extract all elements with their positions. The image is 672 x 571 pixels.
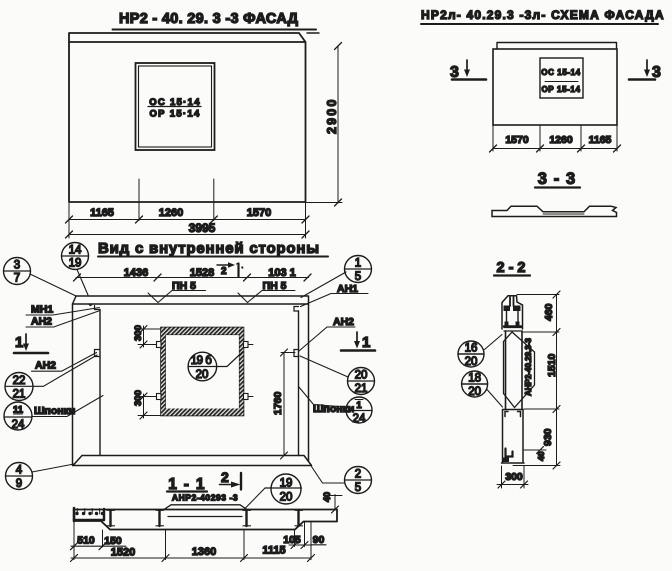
svg-text:22: 22 — [13, 375, 26, 387]
svg-text:930: 930 — [542, 428, 554, 446]
svg-text:40: 40 — [322, 492, 332, 502]
svg-text:НР2 - 40. 29. 3 -3 ФАСАД: НР2 - 40. 29. 3 -3 ФАСАД — [119, 11, 299, 27]
svg-text:Вид с внутренней стороны: Вид с внутренней стороны — [98, 240, 320, 257]
svg-text:24: 24 — [353, 413, 366, 425]
svg-text:1570: 1570 — [247, 207, 271, 219]
svg-text:3 - 3: 3 - 3 — [538, 170, 577, 188]
svg-text:3: 3 — [14, 260, 20, 272]
svg-text:40: 40 — [536, 451, 546, 461]
svg-text:АН2: АН2 — [35, 360, 56, 372]
svg-text:АНР2-40293 -3: АНР2-40293 -3 — [172, 493, 238, 503]
svg-text:14: 14 — [69, 245, 82, 257]
svg-text:1510: 1510 — [546, 353, 558, 377]
svg-text:1: 1 — [356, 400, 362, 411]
svg-text:2: 2 — [221, 266, 227, 277]
svg-text:ОР 15·14: ОР 15·14 — [149, 109, 200, 120]
svg-text:1: 1 — [355, 258, 361, 270]
svg-text:5: 5 — [355, 271, 361, 283]
svg-text:1: 1 — [15, 334, 23, 351]
svg-text:2 - 2: 2 - 2 — [496, 260, 525, 276]
svg-text:300: 300 — [133, 325, 144, 341]
svg-text:ОР 15-14: ОР 15-14 — [541, 85, 580, 94]
svg-text:2: 2 — [355, 469, 361, 481]
svg-text:2: 2 — [221, 469, 229, 485]
svg-text:4: 4 — [16, 465, 23, 477]
svg-text:АНР2-40.29.3-3: АНР2-40.29.3-3 — [524, 338, 533, 396]
svg-text:90: 90 — [313, 534, 325, 546]
svg-text:2900: 2900 — [325, 97, 339, 134]
svg-text:19 б: 19 б — [191, 355, 212, 367]
svg-text:18: 18 — [468, 373, 481, 385]
svg-text:1115: 1115 — [262, 545, 285, 557]
svg-text:3995: 3995 — [189, 221, 216, 235]
svg-text:МН1: МН1 — [31, 304, 53, 316]
svg-text:16: 16 — [465, 343, 478, 355]
svg-text:19: 19 — [280, 478, 293, 490]
svg-text:20: 20 — [196, 369, 209, 381]
svg-text:9: 9 — [16, 478, 22, 490]
svg-text:7: 7 — [14, 273, 20, 285]
svg-text:НР2л- 40.29.3 -3л- СХЕМА ФАСАД: НР2л- 40.29.3 -3л- СХЕМА ФАСАДА — [421, 8, 665, 22]
svg-text:21: 21 — [355, 383, 368, 395]
svg-text:20: 20 — [355, 370, 368, 382]
svg-text:24: 24 — [12, 419, 25, 431]
svg-text:20: 20 — [280, 492, 293, 504]
svg-text:19: 19 — [69, 258, 82, 270]
svg-text:460: 460 — [543, 303, 555, 321]
svg-text:АН2: АН2 — [31, 316, 52, 328]
svg-text:АН2: АН2 — [333, 316, 354, 328]
svg-text:150: 150 — [104, 535, 122, 547]
svg-text:1165: 1165 — [90, 207, 114, 219]
svg-text:510: 510 — [77, 535, 95, 547]
svg-text:1: 1 — [362, 334, 370, 351]
svg-text:21: 21 — [13, 389, 26, 401]
svg-text:1570: 1570 — [505, 134, 529, 146]
svg-text:1165: 1165 — [589, 134, 612, 146]
svg-text:1760: 1760 — [272, 391, 284, 415]
svg-text:1260: 1260 — [159, 207, 183, 219]
svg-text:105: 105 — [283, 534, 301, 546]
svg-text:1360: 1360 — [192, 546, 216, 558]
svg-text:5: 5 — [355, 482, 361, 494]
svg-text:20: 20 — [465, 356, 478, 368]
svg-text:1520: 1520 — [111, 547, 135, 559]
svg-text:1260: 1260 — [549, 134, 573, 146]
svg-text:20: 20 — [468, 386, 481, 398]
svg-text:300: 300 — [505, 471, 523, 483]
svg-text:ОС 15-14: ОС 15-14 — [541, 68, 580, 77]
svg-text:300: 300 — [133, 390, 144, 406]
